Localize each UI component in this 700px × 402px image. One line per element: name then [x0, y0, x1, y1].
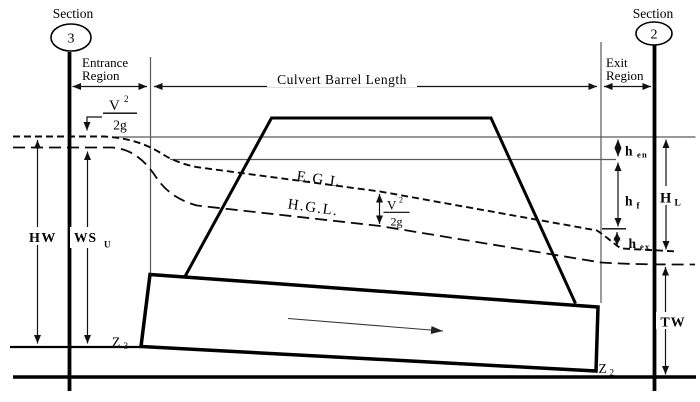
friction-loss-label: h	[625, 194, 633, 209]
total-head-loss-label: H	[660, 191, 672, 207]
total-head-loss-subscript: L	[675, 199, 681, 209]
downstream-invert-subscript: 2	[610, 368, 615, 378]
entrance-loss-subscript: en	[637, 150, 648, 160]
exit-loss-subscript: ex	[640, 242, 650, 252]
barrel-length-label: Culvert Barrel Length	[277, 72, 407, 87]
barrel-velocity-head-symbol: V	[387, 198, 397, 213]
upstream-invert-subscript: 3	[124, 341, 129, 351]
section-3-title: Section	[53, 6, 94, 21]
culvert-hydraulics-diagram: Section 3 Section 2 Entrance Region Culv…	[0, 0, 700, 402]
barrel-velocity-head-exponent: 2	[399, 196, 403, 205]
section-2-title: Section	[633, 6, 674, 21]
section-3-number: 3	[68, 32, 75, 47]
tailwater-label: TW	[660, 316, 685, 331]
approach-velocity-head-denominator: 2g	[113, 118, 127, 133]
diagram-canvas: Section 3 Section 2 Entrance Region Culv…	[0, 0, 700, 402]
headwater-label: HW	[29, 231, 57, 246]
upstream-ws-label: WS	[74, 230, 97, 245]
upstream-invert-label: Z	[112, 335, 120, 350]
approach-velocity-head-exponent: 2	[124, 94, 129, 104]
exit-loss-label: h	[629, 236, 637, 251]
approach-velocity-head-symbol: V	[109, 98, 120, 114]
section-2-number: 2	[651, 28, 658, 43]
exit-region-label-line2: Region	[606, 68, 644, 83]
barrel-velocity-head-denominator: 2g	[391, 215, 403, 229]
downstream-invert-label: Z	[599, 361, 607, 376]
upstream-ws-subscript: U	[104, 240, 111, 250]
entrance-region-label-line2: Region	[82, 68, 120, 83]
entrance-loss-label: h	[625, 144, 633, 159]
